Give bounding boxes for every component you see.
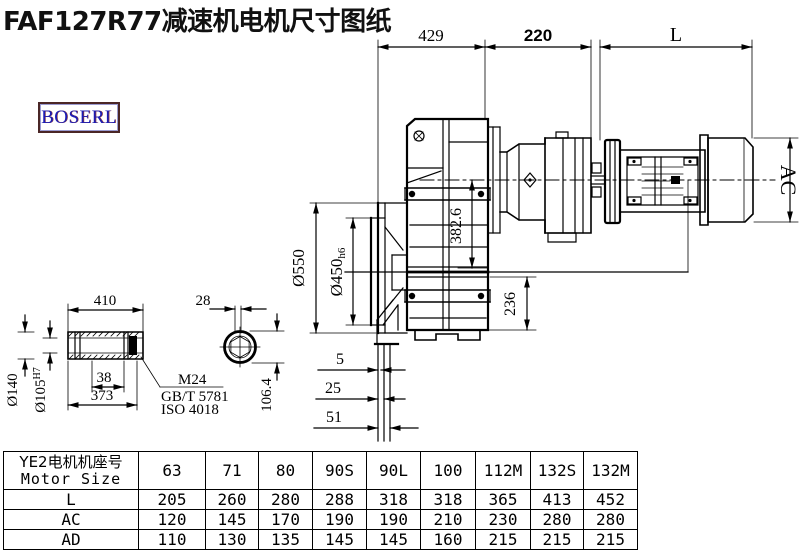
cell: 365: [476, 490, 531, 510]
ac-dimension: AC: [754, 138, 800, 222]
cell: 170: [259, 510, 313, 530]
cell: 280: [584, 510, 638, 530]
col-80: 80: [259, 452, 313, 490]
cell: 130: [206, 530, 259, 550]
shaft-side-view: 410 Ø140 Ø105H7 38 373 M24: [5, 293, 229, 418]
offset-dims: 5 25 51: [314, 351, 418, 428]
cell: 413: [531, 490, 584, 510]
row-label-L: L: [4, 490, 139, 510]
top-dimension-chain: 429 220 L: [378, 24, 752, 203]
label-iso4018: ISO 4018: [161, 402, 219, 418]
table-row: AC 120 145 170 190 190 210 230 280 280: [4, 510, 638, 530]
cell: 288: [313, 490, 367, 510]
cell: 145: [367, 530, 421, 550]
col-132M: 132M: [584, 452, 638, 490]
cell: 205: [139, 490, 206, 510]
table-row: L 205 260 280 288 318 318 365 413 452: [4, 490, 638, 510]
drawing-sheet: FAF127R77减速机电机尺寸图纸 BOSERL 429 220 L: [0, 0, 800, 557]
cell: 230: [476, 510, 531, 530]
dim-28: 28: [196, 293, 211, 309]
dim-429: 429: [418, 26, 444, 45]
dim-220: 220: [524, 26, 552, 45]
dim-25: 25: [325, 380, 341, 397]
cell: 215: [476, 530, 531, 550]
col-63: 63: [139, 452, 206, 490]
col-100: 100: [421, 452, 476, 490]
cell: 260: [206, 490, 259, 510]
cell: 120: [139, 510, 206, 530]
dim-106-4: 106.4: [259, 378, 275, 412]
cell: 280: [259, 490, 313, 510]
cell: 318: [421, 490, 476, 510]
dim-dia140: Ø140: [5, 373, 21, 406]
dim-382-6: 382.6: [448, 208, 465, 244]
input-adapter: [500, 132, 605, 242]
row-label-AD: AD: [4, 530, 139, 550]
dim-410: 410: [94, 293, 117, 309]
cell: 145: [206, 510, 259, 530]
dim-236: 236: [502, 292, 519, 316]
flange-diameter-dims: Ø550 Ø450h6: [289, 203, 378, 333]
header-en: Motor Size: [4, 471, 138, 488]
cell: 210: [421, 510, 476, 530]
cell: 135: [259, 530, 313, 550]
cell: 452: [584, 490, 638, 510]
table-row: AD 110 130 135 145 145 160 215 215 215: [4, 530, 638, 550]
dim-dia450h6: Ø450h6: [327, 247, 348, 296]
height-dims: 382.6 236: [448, 180, 536, 330]
cell: 215: [531, 530, 584, 550]
dim-5: 5: [336, 351, 344, 368]
row-label-AC: AC: [4, 510, 139, 530]
cell: 110: [139, 530, 206, 550]
cell: 280: [531, 510, 584, 530]
dim-51: 51: [326, 409, 342, 426]
dim-L: L: [670, 24, 682, 46]
motor-size-table: YE2电机机座号 Motor Size 63 71 80 90S 90L 100…: [3, 451, 638, 550]
header-cn: YE2电机机座号: [4, 454, 138, 471]
dim-AC: AC: [776, 165, 800, 196]
col-90L: 90L: [367, 452, 421, 490]
col-71: 71: [206, 452, 259, 490]
cell: 190: [367, 510, 421, 530]
table-header-motor-size: YE2电机机座号 Motor Size: [4, 452, 139, 490]
output-flange: [371, 203, 407, 441]
cell: 215: [584, 530, 638, 550]
col-132S: 132S: [531, 452, 584, 490]
cell: 190: [313, 510, 367, 530]
label-M24: M24: [178, 372, 207, 388]
dim-373: 373: [91, 388, 114, 404]
col-112M: 112M: [476, 452, 531, 490]
cell: 160: [421, 530, 476, 550]
dim-38: 38: [97, 370, 112, 386]
dim-dia105H7: Ø105H7: [32, 367, 49, 413]
col-90S: 90S: [313, 452, 367, 490]
cell: 145: [313, 530, 367, 550]
cell: 318: [367, 490, 421, 510]
dim-dia550: Ø550: [289, 249, 308, 287]
